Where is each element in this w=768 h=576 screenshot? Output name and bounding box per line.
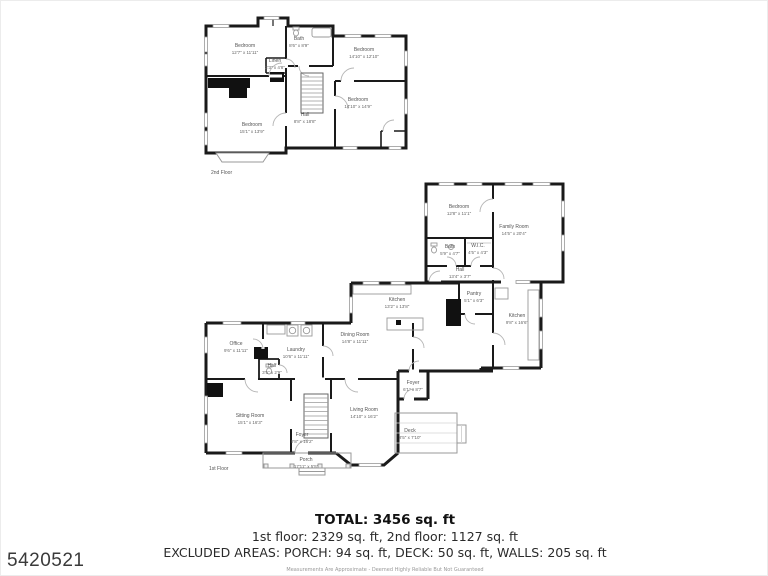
area-summary: TOTAL: 3456 sq. ft 1st floor: 2329 sq. f… bbox=[1, 512, 768, 573]
floorplan-drawing bbox=[1, 1, 768, 576]
floor2-caption: 2nd Floor bbox=[211, 170, 232, 176]
floor2-bath-fixtures bbox=[293, 27, 331, 37]
listing-id-stamp: 5420521 bbox=[7, 550, 84, 572]
total-area-text: TOTAL: 3456 sq. ft bbox=[1, 512, 768, 528]
disclaimer-text: Measurements Are Approximate - Deemed Hi… bbox=[1, 567, 768, 573]
floor2-bay-window bbox=[216, 153, 269, 162]
floor1-laundry-appliances bbox=[267, 325, 312, 336]
floor1-main-walls bbox=[206, 283, 541, 465]
floor1-halfbath-fixtures bbox=[266, 364, 272, 374]
floor1-wing-bath-fixtures bbox=[431, 243, 491, 253]
floor1-caption: 1st Floor bbox=[209, 466, 228, 472]
floor1-plan bbox=[205, 183, 565, 476]
deck bbox=[395, 413, 466, 453]
floor2-door-gaps bbox=[269, 59, 394, 133]
floor1-wing-walls bbox=[426, 184, 563, 282]
floor1-stairs-icon bbox=[304, 394, 328, 438]
floor2-plan bbox=[205, 17, 408, 163]
floor2-door-arcs bbox=[269, 59, 394, 131]
floor1-wing-door-gaps bbox=[429, 199, 517, 284]
floor1-windows bbox=[205, 282, 543, 467]
floor-breakdown-text: 1st floor: 2329 sq. ft, 2nd floor: 1127 … bbox=[1, 529, 768, 544]
floorplan-page: Bedroom 12'7" x 11'11" Bath 8'6" x 8'9" … bbox=[0, 0, 768, 576]
excluded-areas-text: EXCLUDED AREAS: PORCH: 94 sq. ft, DECK: … bbox=[1, 545, 768, 560]
floor2-stairs-icon bbox=[301, 73, 323, 113]
